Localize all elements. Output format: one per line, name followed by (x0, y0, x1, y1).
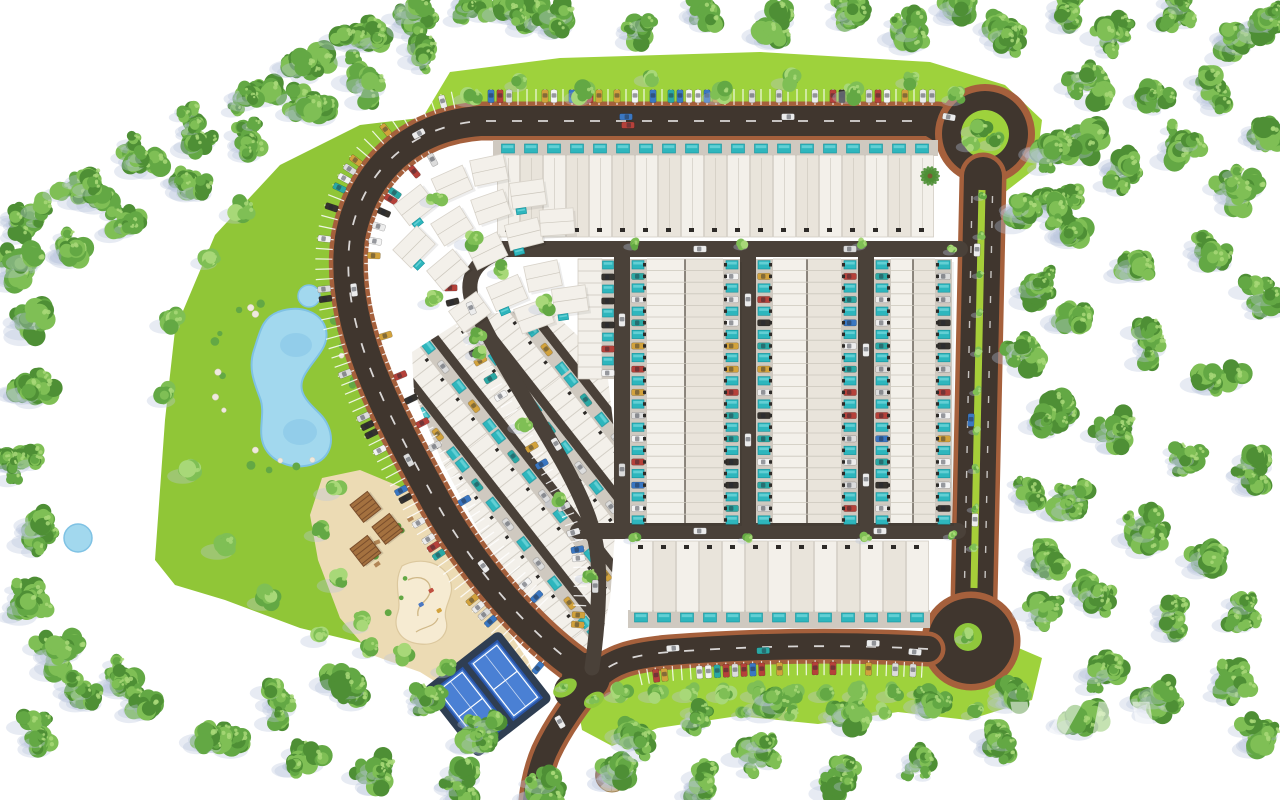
masterplan-aerial-render: VIV E (0, 0, 1280, 800)
watermark-text: VIV (1003, 683, 1206, 795)
render-canvas: VIV E (0, 0, 1280, 800)
watermark-subtext: E (1120, 756, 1129, 774)
